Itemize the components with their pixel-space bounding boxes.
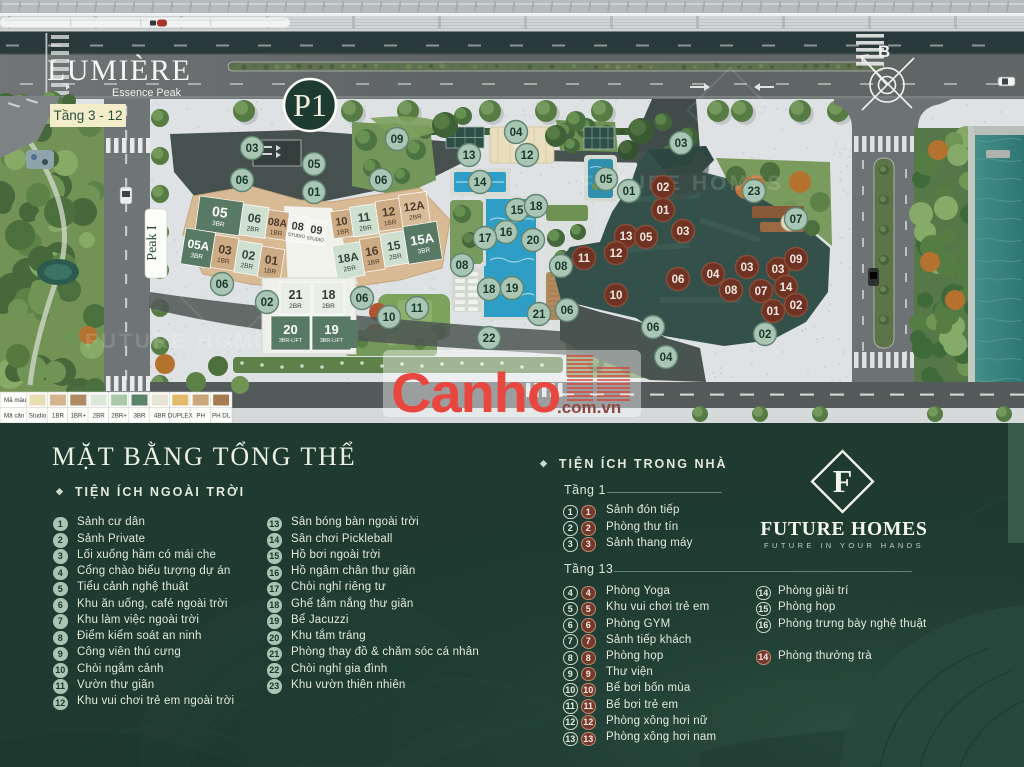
svg-text:FUTURE HOMES: FUTURE HOMES: [85, 330, 289, 353]
svg-text:03: 03: [772, 264, 785, 276]
svg-text:1BR: 1BR: [52, 413, 65, 420]
svg-text:02: 02: [261, 297, 274, 309]
svg-text:01: 01: [623, 186, 636, 198]
svg-text:20: 20: [527, 235, 540, 247]
svg-text:06: 06: [247, 210, 262, 226]
svg-text:08: 08: [456, 260, 469, 272]
svg-text:Mã màu: Mã màu: [4, 397, 27, 404]
svg-text:07: 07: [755, 286, 768, 298]
svg-text:03: 03: [677, 226, 690, 238]
svg-text:09: 09: [790, 254, 803, 266]
svg-text:07: 07: [790, 214, 803, 226]
svg-text:01: 01: [308, 187, 321, 199]
svg-text:10: 10: [335, 215, 349, 229]
svg-text:03: 03: [217, 242, 233, 258]
svg-text:.com.vn: .com.vn: [557, 398, 621, 417]
svg-text:20: 20: [283, 322, 297, 337]
svg-text:01: 01: [767, 306, 780, 318]
svg-text:F: F: [833, 463, 853, 499]
svg-text:06: 06: [647, 322, 660, 334]
svg-text:04: 04: [660, 352, 673, 364]
svg-text:22: 22: [483, 333, 496, 345]
svg-text:DUPLEX: DUPLEX: [168, 413, 193, 420]
svg-text:03: 03: [246, 143, 259, 155]
svg-text:12: 12: [610, 248, 623, 260]
svg-text:06: 06: [375, 175, 388, 187]
svg-text:Mã căn: Mã căn: [4, 413, 25, 420]
svg-text:P1: P1: [293, 87, 327, 123]
svg-text:06: 06: [216, 279, 229, 291]
svg-text:11: 11: [578, 253, 591, 265]
svg-text:05: 05: [308, 159, 321, 171]
svg-text:03: 03: [741, 262, 754, 274]
svg-text:16: 16: [364, 243, 380, 259]
svg-text:18: 18: [322, 288, 336, 302]
svg-text:3BR: 3BR: [133, 413, 146, 420]
svg-text:18: 18: [530, 201, 543, 213]
svg-text:3BR-LIFT: 3BR-LIFT: [279, 338, 303, 344]
svg-text:06: 06: [236, 175, 249, 187]
svg-text:1BR+: 1BR+: [70, 413, 86, 420]
svg-text:01: 01: [657, 205, 670, 217]
svg-text:12: 12: [381, 204, 396, 220]
svg-text:02: 02: [759, 329, 772, 341]
svg-text:05: 05: [211, 203, 229, 221]
svg-text:4BR: 4BR: [154, 413, 167, 420]
svg-text:21: 21: [533, 309, 546, 321]
svg-text:21: 21: [289, 288, 303, 302]
svg-text:16: 16: [500, 227, 513, 239]
svg-text:03: 03: [675, 138, 688, 150]
svg-text:Studio: Studio: [29, 413, 47, 420]
svg-text:10: 10: [610, 290, 623, 302]
svg-text:Canho: Canho: [391, 361, 560, 423]
svg-text:3BR-LIFT: 3BR-LIFT: [320, 338, 344, 344]
svg-text:15: 15: [511, 205, 524, 217]
svg-text:11: 11: [357, 209, 372, 225]
svg-text:PH DL: PH DL: [212, 413, 231, 420]
svg-text:2BR: 2BR: [322, 303, 335, 310]
svg-text:B: B: [878, 42, 890, 61]
svg-text:19: 19: [324, 322, 338, 337]
svg-text:04: 04: [707, 269, 720, 281]
svg-text:17: 17: [479, 233, 492, 245]
svg-text:09: 09: [391, 134, 404, 146]
svg-text:05: 05: [640, 232, 653, 244]
svg-text:12: 12: [521, 150, 534, 162]
svg-text:19: 19: [506, 283, 519, 295]
svg-text:2BR+: 2BR+: [111, 413, 127, 420]
svg-text:02: 02: [657, 182, 670, 194]
svg-text:06: 06: [561, 305, 574, 317]
svg-text:10: 10: [383, 312, 396, 324]
svg-text:2BR: 2BR: [93, 413, 106, 420]
svg-text:2BR: 2BR: [289, 303, 302, 310]
svg-text:05: 05: [600, 174, 613, 186]
svg-text:02: 02: [790, 300, 803, 312]
svg-text:13: 13: [620, 231, 633, 243]
svg-text:PH: PH: [196, 413, 205, 420]
svg-text:Peak I: Peak I: [145, 225, 160, 261]
svg-text:13: 13: [463, 150, 476, 162]
svg-text:Essence Peak: Essence Peak: [112, 87, 182, 99]
svg-text:LUMIÈRE: LUMIÈRE: [47, 54, 192, 87]
svg-text:23: 23: [748, 186, 761, 198]
svg-text:06: 06: [672, 274, 685, 286]
svg-text:08: 08: [725, 285, 738, 297]
svg-text:06: 06: [356, 293, 369, 305]
svg-text:08: 08: [555, 261, 568, 273]
svg-text:18: 18: [483, 284, 496, 296]
svg-text:04: 04: [510, 127, 523, 139]
svg-text:15: 15: [386, 238, 402, 254]
svg-text:Tầng 3 - 12: Tầng 3 - 12: [53, 108, 122, 123]
svg-text:14: 14: [780, 282, 793, 294]
svg-text:11: 11: [411, 303, 424, 315]
svg-text:01: 01: [264, 252, 280, 268]
svg-text:14: 14: [474, 177, 487, 189]
svg-text:02: 02: [241, 247, 257, 263]
